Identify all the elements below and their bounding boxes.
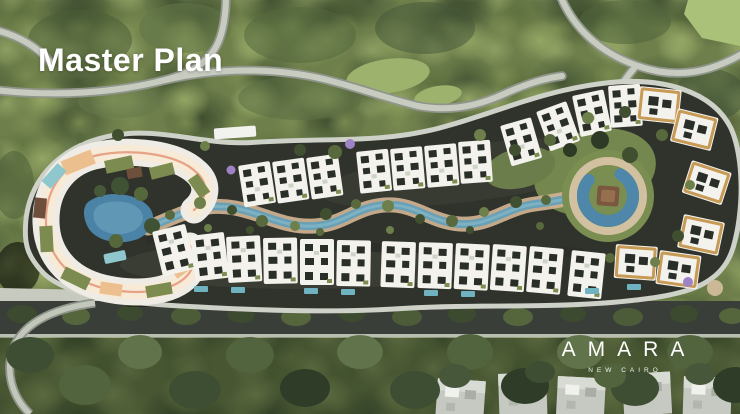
villa [306,154,344,200]
villa [424,143,460,188]
brand-tagline: NEW CAIRO [548,367,698,374]
villa [417,242,453,289]
villa [390,146,426,191]
villa [263,237,298,284]
villa [380,241,416,288]
villa [636,86,681,124]
villa [490,244,527,292]
villa [608,84,643,128]
villa [238,161,276,207]
central-pool [562,150,654,242]
villa [272,158,310,204]
villa [526,246,564,295]
brand-logo: AMARA NEW CAIRO [548,338,698,374]
villa [454,243,490,291]
villa [655,250,701,290]
villa [336,240,371,287]
master-plan-render: Master Plan AMARA NEW CAIRO [0,0,740,414]
development-strip [28,84,739,309]
villa [226,235,262,283]
villa [300,239,334,285]
villa [190,232,229,282]
brand-name: AMARA [548,338,698,362]
villa [458,140,493,184]
entry-canopy-bus [214,126,257,140]
page-title: Master Plan [38,42,223,79]
villa [356,149,392,194]
